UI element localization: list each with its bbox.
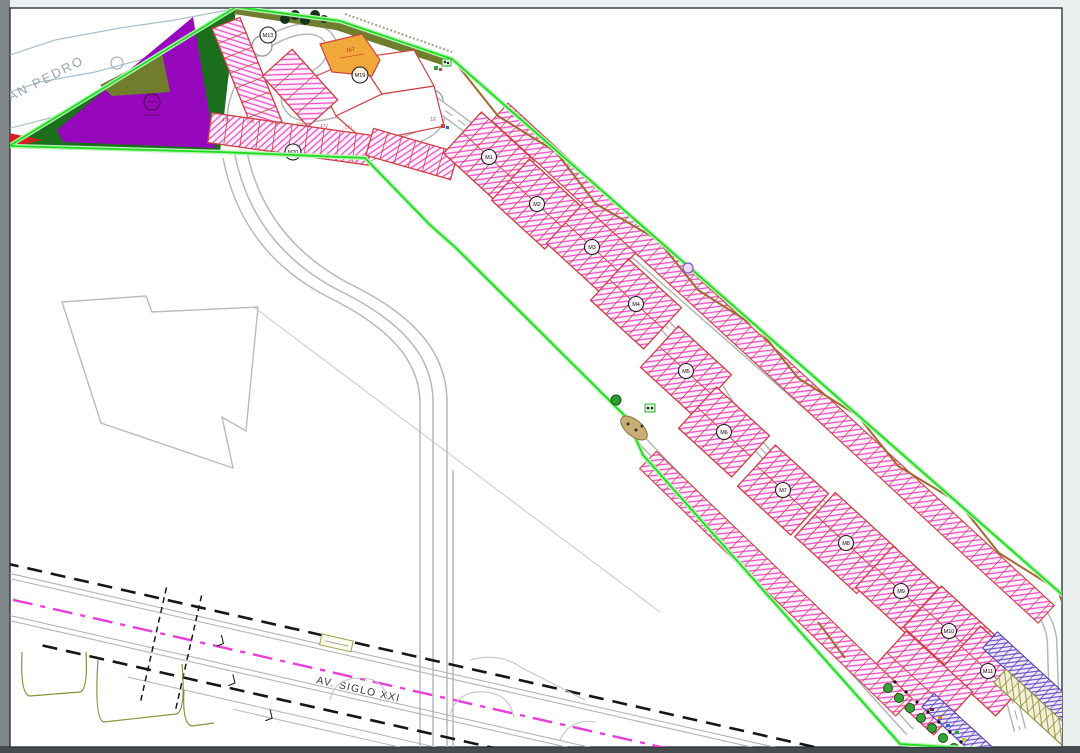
lot-number: 172 <box>320 123 329 129</box>
block-label: M13 <box>263 33 274 39</box>
tree-icon <box>906 704 915 713</box>
block-label: M19 <box>355 73 366 79</box>
block-id-circle: M20 <box>285 144 301 160</box>
tree-icon <box>884 684 893 693</box>
lot-number: 176 <box>222 117 231 123</box>
site-plan-map: RIO SAN PEDRO <box>0 0 1080 753</box>
tree-icon <box>917 714 926 723</box>
block-label: M8 <box>842 541 850 547</box>
block-label: M1 <box>485 155 493 161</box>
transformer-icon <box>442 59 451 66</box>
post-dot <box>926 710 929 713</box>
post-dot <box>948 730 951 733</box>
well-icon <box>683 263 693 273</box>
post-dot <box>937 720 940 723</box>
block-label: M11 <box>983 669 993 675</box>
page-left-edge <box>0 0 10 753</box>
tree-icon <box>895 694 904 703</box>
small-magenta-tag: 1E <box>430 117 437 123</box>
tree-icon <box>928 724 937 733</box>
block-label: M10 <box>944 629 955 635</box>
post-dot <box>904 690 907 693</box>
site-plan-screenshot: RIO SAN PEDRO <box>0 0 1080 753</box>
post-dot <box>915 700 918 703</box>
lot-number: 173 <box>295 122 304 128</box>
block-label: M5 <box>682 369 690 375</box>
block-label: M7 <box>779 488 787 494</box>
transformer-icon <box>645 404 655 412</box>
post-dot <box>893 680 896 683</box>
block-label: M6 <box>720 430 728 436</box>
tree-icon <box>611 395 621 405</box>
lot-number: 174 <box>271 120 280 126</box>
block-label: M9 <box>897 589 905 595</box>
block-label: M3 <box>588 245 596 251</box>
block-label: M2 <box>533 202 541 208</box>
tree-icon <box>939 734 948 743</box>
block-id-circle: M19 <box>352 67 368 83</box>
block-id-circle: M13 <box>260 27 276 43</box>
lot-number: 171 <box>344 125 353 131</box>
orange-lot-number: 167 <box>345 47 355 54</box>
lot-number: 175 <box>246 119 255 125</box>
block-label: M4 <box>632 302 640 308</box>
